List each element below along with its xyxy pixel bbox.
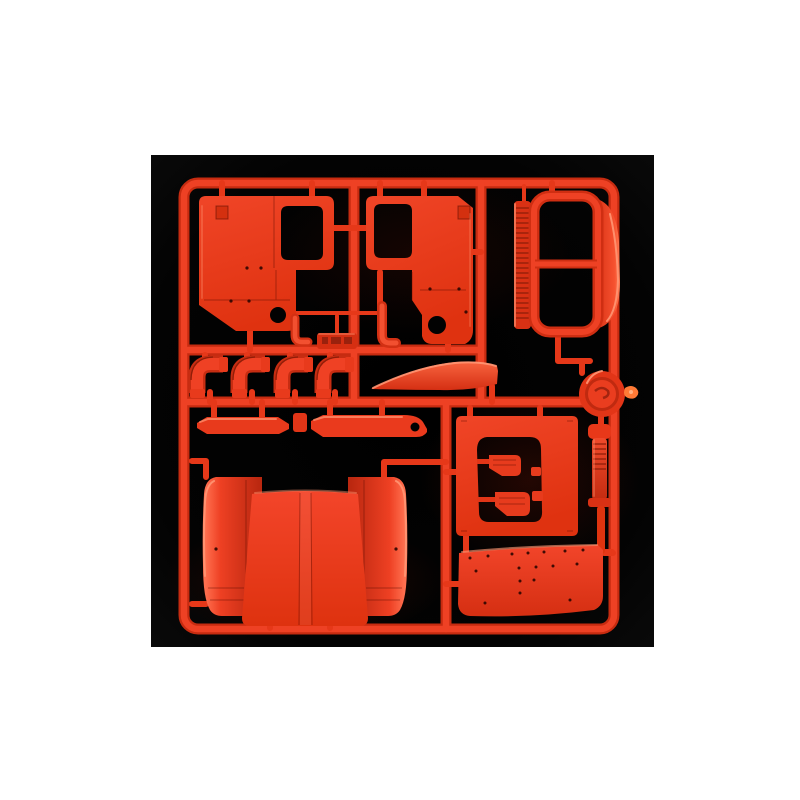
mudguard-panel: Wide lower mudguard panel dotted with ri… [458,545,603,616]
product-photo-page: Square red runner frame with internal ru… [0,0,800,800]
sprue-photo: Square red runner frame with internal ru… [0,0,800,800]
gate-nub-highlight [629,390,633,394]
clip [531,467,541,476]
grille-strip [514,201,531,329]
cab-back-assembly: Large cab back/roof panel with central s… [203,477,408,626]
molded-id-tab: Raised runner tab with illegible embosse… [317,333,357,349]
clip [532,491,543,501]
spine-ridge [300,492,311,625]
link-piece [293,413,307,432]
